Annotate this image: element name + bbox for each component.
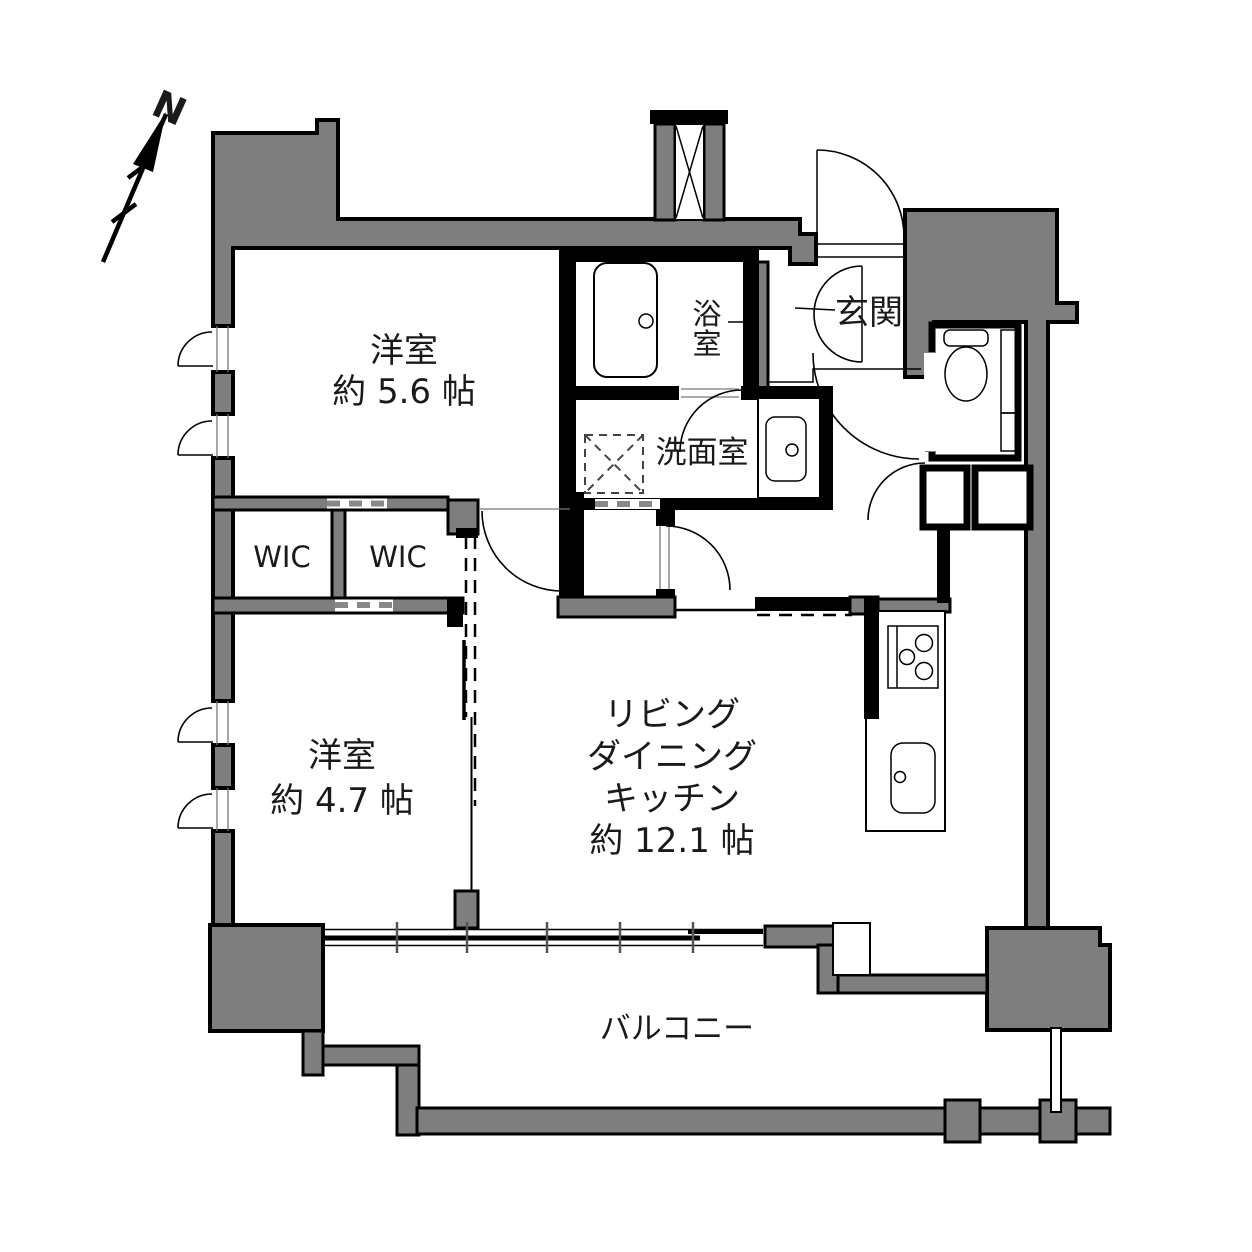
entry-step-line (768, 369, 921, 382)
compass: N (103, 82, 193, 262)
washroom-leg-cap-top (656, 510, 675, 526)
washer-x1 (585, 435, 643, 493)
window1-arc (178, 332, 212, 366)
elevator-cap (650, 110, 728, 124)
corridor-east-wall (937, 527, 950, 603)
kitchen (864, 597, 945, 831)
elevator-shaft (650, 110, 728, 220)
bedroom2-ne-wall (447, 598, 463, 627)
elevator-wall-right (704, 124, 724, 220)
wall-left-seg4 (213, 831, 233, 928)
ldk-label-line3: キッチン (604, 779, 740, 819)
toilet-door-gap-white (924, 353, 937, 451)
entrance-label-leader (795, 308, 835, 310)
bedroom1-door-arc (482, 511, 562, 591)
washer-space (585, 435, 643, 493)
window4-arc (178, 794, 212, 828)
ldk-corner-pillar (833, 923, 870, 975)
kitchen-back-wall (755, 597, 852, 611)
ldk-label-line1: リビング (604, 695, 740, 735)
structural-walls (210, 120, 1110, 1142)
junction-pillar (570, 492, 584, 598)
ldk-label-line2: ダイニング (587, 737, 757, 777)
entrance-door-arc (817, 150, 904, 237)
bath-east-wall (743, 248, 759, 400)
balcony-step1 (303, 1031, 323, 1075)
balcony-block-left (210, 925, 323, 1031)
entrance-label: 玄関 (835, 293, 903, 333)
balcony-divider (1051, 1028, 1061, 1112)
wall-ldk-south-thin (837, 975, 987, 993)
bathroom-label-char2: 室 (692, 327, 721, 361)
elevator-wall-left (655, 124, 675, 220)
toilet-room (932, 325, 1018, 458)
compass-tick2 (112, 204, 136, 222)
bath-south-wall-a (559, 386, 679, 400)
south-windows (323, 922, 763, 953)
washer-x2 (585, 435, 643, 493)
closet-door-arc (868, 463, 925, 520)
floorplan: N 洋室 約 5.6 帖 洋室 約 4.7 帖 リビング ダイニング キッチン … (0, 0, 1252, 1252)
washroom-leg-south-wall (558, 597, 675, 617)
wall-top-left-block (213, 120, 816, 326)
wall-left-seg2 (213, 458, 233, 701)
wall-left-seg3 (213, 745, 233, 788)
balcony-step2 (323, 1046, 419, 1065)
pillar-bottom-right (987, 928, 1110, 1030)
bedroom2-size: 約 4.7 帖 (270, 781, 414, 821)
vanity-counter (758, 398, 820, 498)
partition (455, 536, 478, 928)
bedroom1-label: 洋室 (370, 331, 438, 371)
hall-closet2 (975, 468, 1030, 527)
bathtub (594, 263, 657, 377)
bedroom1-size: 約 5.6 帖 (332, 372, 476, 412)
wic-divider (332, 510, 345, 598)
balcony-rail-bump1 (945, 1100, 980, 1142)
balcony-label: バルコニー (600, 1011, 754, 1047)
floorplan-canvas: N 洋室 約 5.6 帖 洋室 約 4.7 帖 リビング ダイニング キッチン … (0, 0, 1252, 1252)
window2-arc (178, 421, 212, 455)
ldk-size: 約 12.1 帖 (589, 821, 754, 861)
kitchen-peninsula-wall (864, 597, 879, 719)
washroom-door-arc (666, 526, 730, 590)
bath-north-wall (559, 248, 759, 262)
wic2-label: WIC (369, 540, 426, 574)
wall-left-seg1 (213, 372, 233, 414)
kitchen-walls (675, 527, 950, 615)
wic1-label: WIC (253, 540, 310, 574)
toilet-area (923, 325, 1030, 527)
bathroom-label-char1: 浴 (692, 297, 721, 331)
window3-arc (178, 708, 212, 742)
compass-north-label: N (146, 82, 193, 135)
washroom-label: 洗面室 (656, 435, 749, 471)
bedroom2-label: 洋室 (308, 736, 376, 776)
balcony-rail (417, 1108, 1110, 1134)
hall-closet1 (923, 468, 967, 527)
